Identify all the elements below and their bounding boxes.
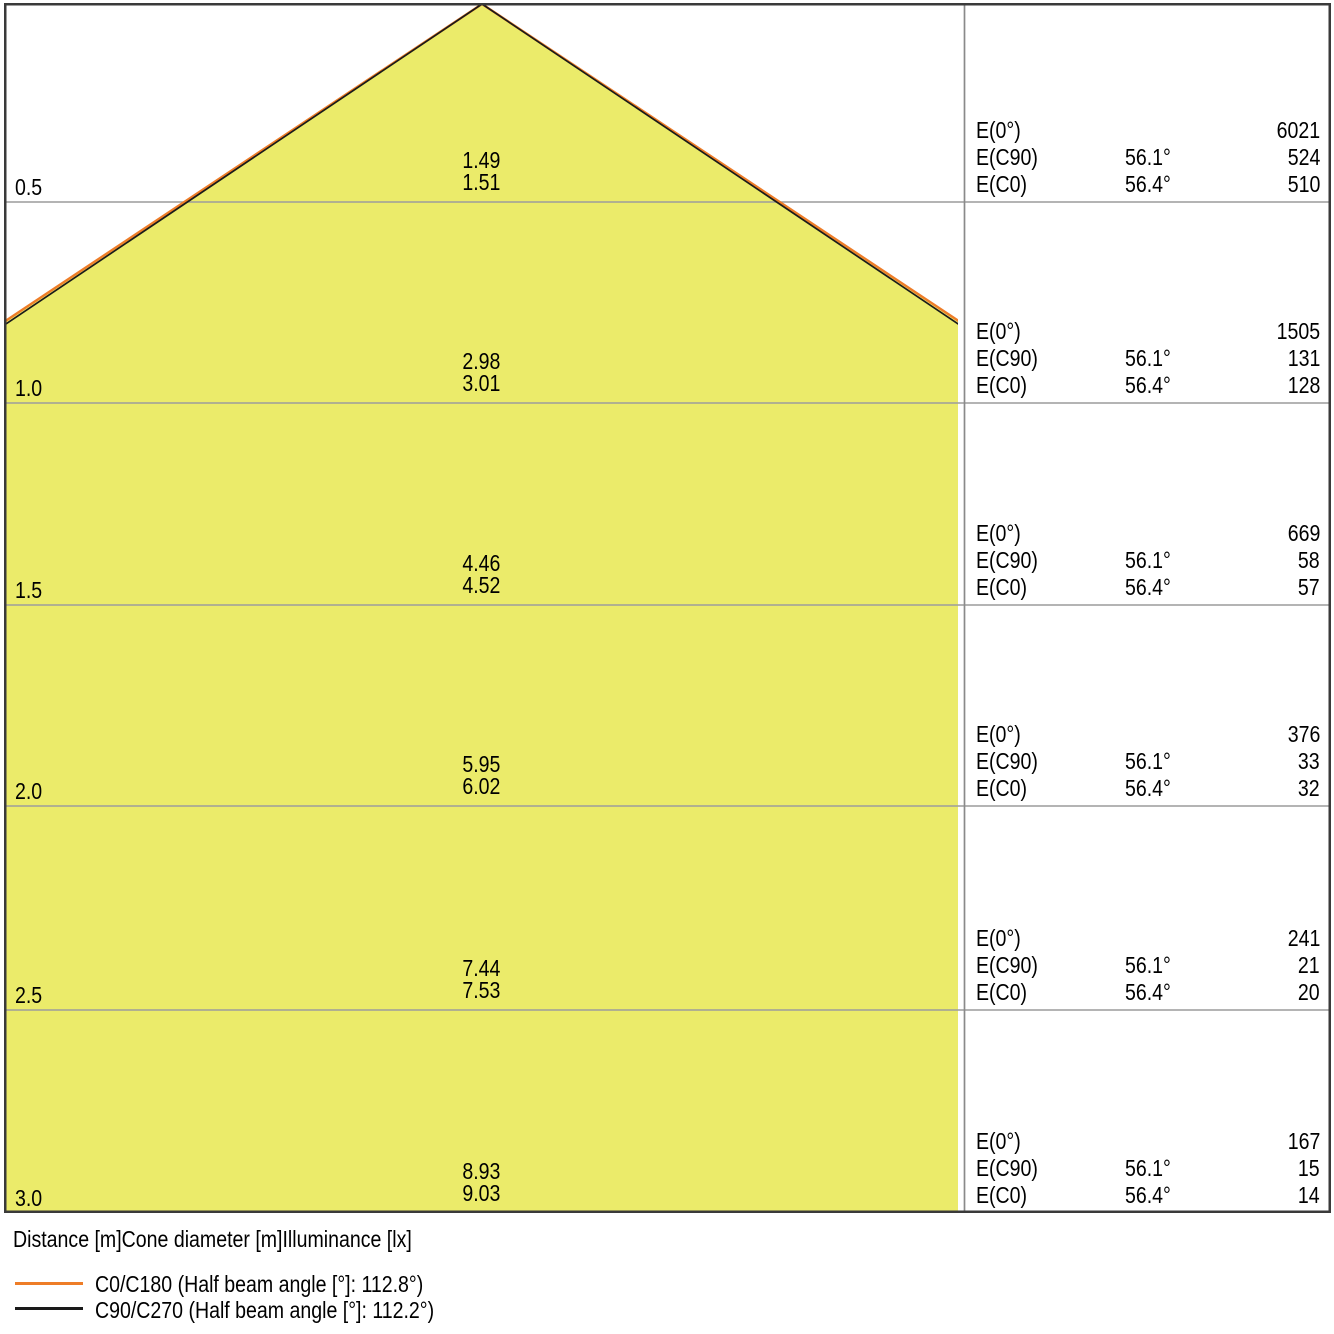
- axes-caption: Distance [m]Cone diameter [m]Illuminance…: [13, 1227, 412, 1251]
- cone-diameter-c0-value: 4.52: [462, 574, 500, 596]
- ec90-label: E(C90): [976, 748, 1038, 775]
- cone-diameter-c90-value: 7.44: [462, 957, 500, 979]
- cone-diameter-labels: 8.93 9.03: [411, 1160, 551, 1204]
- ec0-angle: 56.4°: [1125, 372, 1171, 399]
- ec90-value: 15: [1298, 1155, 1320, 1182]
- ec0-angle: 56.4°: [1125, 979, 1171, 1006]
- illuminance-table: E(0°)6021 E(C90)56.1°524 E(C0)56.4°510: [976, 117, 1320, 198]
- e0-value: 241: [1287, 925, 1320, 952]
- e0-value: 376: [1287, 721, 1320, 748]
- cone-diameter-c90-value: 4.46: [462, 552, 500, 574]
- ec0-label: E(C0): [976, 574, 1027, 601]
- distance-label: 1.5: [15, 579, 47, 601]
- cone-diameter-c90-value: 1.49: [462, 149, 500, 171]
- distance-label: 2.5: [15, 984, 47, 1006]
- illuminance-table: E(0°)376 E(C90)56.1°33 E(C0)56.4°32: [976, 721, 1320, 802]
- ec90-angle: 56.1°: [1125, 144, 1171, 171]
- ec90-angle: 56.1°: [1125, 748, 1171, 775]
- ec90-value: 58: [1298, 547, 1320, 574]
- ec90-angle: 56.1°: [1125, 547, 1171, 574]
- illuminance-table: E(0°)669 E(C90)56.1°58 E(C0)56.4°57: [976, 520, 1320, 601]
- e0-value: 669: [1287, 520, 1320, 547]
- ec0-label: E(C0): [976, 775, 1027, 802]
- ec0-label: E(C0): [976, 171, 1027, 198]
- e0-value: 6021: [1277, 117, 1320, 144]
- c0-c180-legend-label: C0/C180 (Half beam angle [°]: 112.8°): [95, 1272, 423, 1296]
- ec0-label: E(C0): [976, 372, 1027, 399]
- cone-diameter-labels: 4.46 4.52: [411, 552, 551, 596]
- c90-c270-legend-label: C90/C270 (Half beam angle [°]: 112.2°): [95, 1298, 434, 1322]
- cone-diameter-labels: 2.98 3.01: [411, 350, 551, 394]
- ec90-label: E(C90): [976, 952, 1038, 979]
- cone-diameter-c0-value: 6.02: [462, 775, 500, 797]
- ec0-value: 20: [1298, 979, 1320, 1006]
- illuminance-axis-label: Illuminance [lx]: [282, 1226, 411, 1252]
- ec0-angle: 56.4°: [1125, 1182, 1171, 1209]
- ec0-angle: 56.4°: [1125, 171, 1171, 198]
- e0-label: E(0°): [976, 925, 1021, 952]
- e0-value: 167: [1287, 1128, 1320, 1155]
- ec90-angle: 56.1°: [1125, 952, 1171, 979]
- e0-label: E(0°): [976, 721, 1021, 748]
- cone-diagram-page: 0.5 1.49 1.51 E(0°)6021 E(C90)56.1°524 E…: [0, 0, 1334, 1334]
- cone-diameter-c90-value: 2.98: [462, 350, 500, 372]
- ec90-value: 524: [1287, 144, 1320, 171]
- cone-diameter-c90-value: 5.95: [462, 753, 500, 775]
- distance-label: 3.0: [15, 1187, 47, 1209]
- ec90-label: E(C90): [976, 144, 1038, 171]
- ec0-value: 57: [1298, 574, 1320, 601]
- cone-diameter-c0-value: 7.53: [462, 979, 500, 1001]
- ec90-angle: 56.1°: [1125, 345, 1171, 372]
- cone-diameter-c90-value: 8.93: [462, 1160, 500, 1182]
- cone-diameter-c0-value: 3.01: [462, 372, 500, 394]
- ec0-label: E(C0): [976, 979, 1027, 1006]
- illuminance-table: E(0°)241 E(C90)56.1°21 E(C0)56.4°20: [976, 925, 1320, 1006]
- ec90-label: E(C90): [976, 345, 1038, 372]
- cone-diameter-c0-value: 9.03: [462, 1182, 500, 1204]
- distance-label: 2.0: [15, 780, 47, 802]
- illuminance-table: E(0°)1505 E(C90)56.1°131 E(C0)56.4°128: [976, 318, 1320, 399]
- e0-label: E(0°): [976, 318, 1021, 345]
- illuminance-table: E(0°)167 E(C90)56.1°15 E(C0)56.4°14: [976, 1128, 1320, 1209]
- ec0-value: 128: [1287, 372, 1320, 399]
- cone-diameter-labels: 7.44 7.53: [411, 957, 551, 1001]
- ec0-value: 510: [1287, 171, 1320, 198]
- distance-label: 0.5: [15, 176, 47, 198]
- c0-c180-legend-line: [15, 1282, 83, 1285]
- ec90-angle: 56.1°: [1125, 1155, 1171, 1182]
- ec0-angle: 56.4°: [1125, 574, 1171, 601]
- c90-c270-legend-line: [15, 1307, 83, 1310]
- ec0-value: 32: [1298, 775, 1320, 802]
- cone-diameter-labels: 1.49 1.51: [411, 149, 551, 193]
- ec90-value: 21: [1298, 952, 1320, 979]
- ec0-value: 14: [1298, 1182, 1320, 1209]
- ec0-angle: 56.4°: [1125, 775, 1171, 802]
- distance-axis-label: Distance [m]: [13, 1226, 122, 1252]
- cone-diameter-axis-label: Cone diameter [m]: [122, 1226, 283, 1252]
- distance-label: 1.0: [15, 377, 47, 399]
- e0-label: E(0°): [976, 520, 1021, 547]
- ec90-label: E(C90): [976, 1155, 1038, 1182]
- cone-diameter-labels: 5.95 6.02: [411, 753, 551, 797]
- e0-label: E(0°): [976, 1128, 1021, 1155]
- e0-value: 1505: [1277, 318, 1320, 345]
- e0-label: E(0°): [976, 117, 1021, 144]
- ec90-value: 131: [1287, 345, 1320, 372]
- ec90-value: 33: [1298, 748, 1320, 775]
- ec0-label: E(C0): [976, 1182, 1027, 1209]
- ec90-label: E(C90): [976, 547, 1038, 574]
- cone-diameter-c0-value: 1.51: [462, 171, 500, 193]
